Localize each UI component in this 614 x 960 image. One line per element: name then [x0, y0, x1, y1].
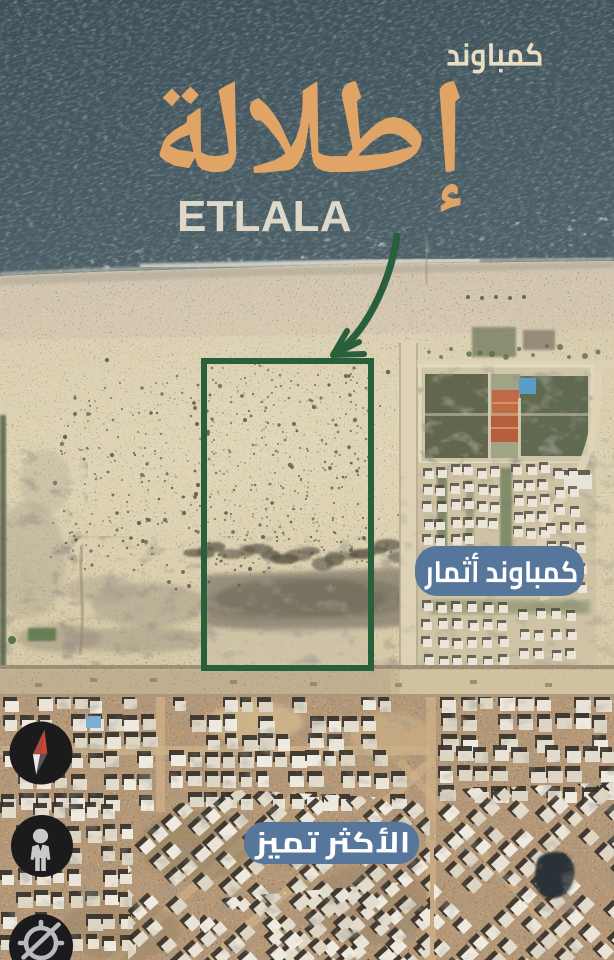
svg-text:ETLALA: ETLALA: [177, 192, 352, 241]
